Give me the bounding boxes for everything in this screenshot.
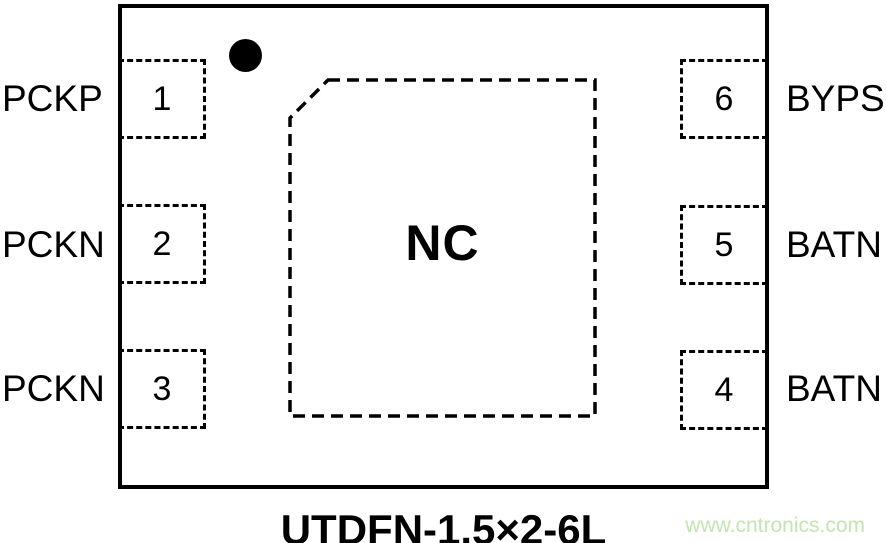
watermark: www.cntronics.com — [685, 514, 865, 538]
pin-number-1: 1 — [153, 80, 172, 119]
pin-label-batn-4: BATN — [786, 367, 882, 411]
pinout-diagram: 1 2 3 6 5 4 PCKP PCKN PCKN BYPS BATN BAT… — [0, 0, 886, 543]
center-pad-label: NC — [290, 216, 595, 270]
package-title: UTDFN-1.5×2-6L — [118, 506, 769, 543]
pin1-indicator-icon — [229, 39, 262, 72]
pin-label-byps: BYPS — [786, 77, 885, 121]
pin-number-4: 4 — [715, 371, 734, 410]
pin-box-4: 4 — [680, 350, 768, 430]
pin-box-1: 1 — [118, 59, 206, 139]
pin-label-pckn-3: PCKN — [2, 367, 105, 411]
pin-box-3: 3 — [118, 349, 206, 429]
pin-number-6: 6 — [715, 80, 734, 119]
pin-box-6: 6 — [680, 59, 768, 139]
pin-label-pckn-2: PCKN — [2, 223, 105, 267]
pin-number-2: 2 — [153, 225, 172, 264]
pin-label-pckp: PCKP — [2, 77, 103, 121]
pin-number-5: 5 — [715, 226, 734, 265]
pin-box-2: 2 — [118, 204, 206, 284]
pin-box-5: 5 — [680, 205, 768, 285]
pin-label-batn-5: BATN — [786, 223, 882, 267]
pin-number-3: 3 — [153, 370, 172, 409]
